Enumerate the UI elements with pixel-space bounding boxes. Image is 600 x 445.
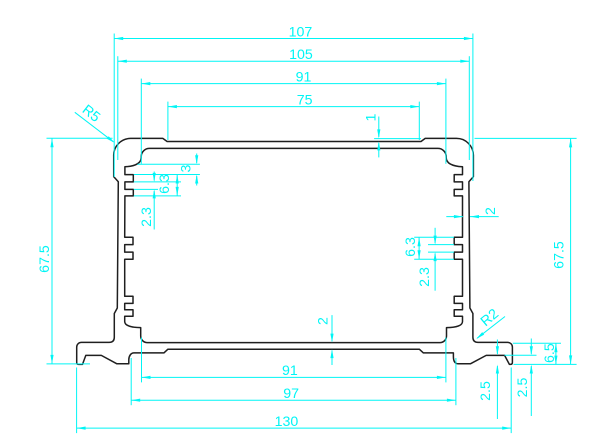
svg-text:2.5: 2.5 bbox=[478, 381, 494, 401]
svg-text:2.5: 2.5 bbox=[515, 378, 531, 398]
svg-text:67.5: 67.5 bbox=[37, 245, 53, 273]
svg-text:2.3: 2.3 bbox=[417, 267, 433, 287]
svg-text:2.3: 2.3 bbox=[139, 207, 155, 227]
svg-text:91: 91 bbox=[296, 69, 312, 85]
svg-text:3: 3 bbox=[178, 165, 194, 173]
svg-text:107: 107 bbox=[289, 24, 313, 40]
svg-text:6.5: 6.5 bbox=[542, 343, 558, 363]
svg-text:97: 97 bbox=[283, 386, 299, 402]
svg-text:130: 130 bbox=[275, 414, 299, 430]
svg-text:1: 1 bbox=[364, 113, 380, 121]
svg-text:6.3: 6.3 bbox=[157, 174, 173, 194]
svg-text:2: 2 bbox=[315, 317, 331, 325]
svg-text:67.5: 67.5 bbox=[551, 241, 567, 269]
svg-text:105: 105 bbox=[289, 47, 313, 63]
svg-text:75: 75 bbox=[297, 92, 313, 108]
svg-text:2: 2 bbox=[483, 207, 499, 215]
svg-text:6.3: 6.3 bbox=[403, 237, 419, 257]
svg-text:91: 91 bbox=[282, 363, 298, 379]
